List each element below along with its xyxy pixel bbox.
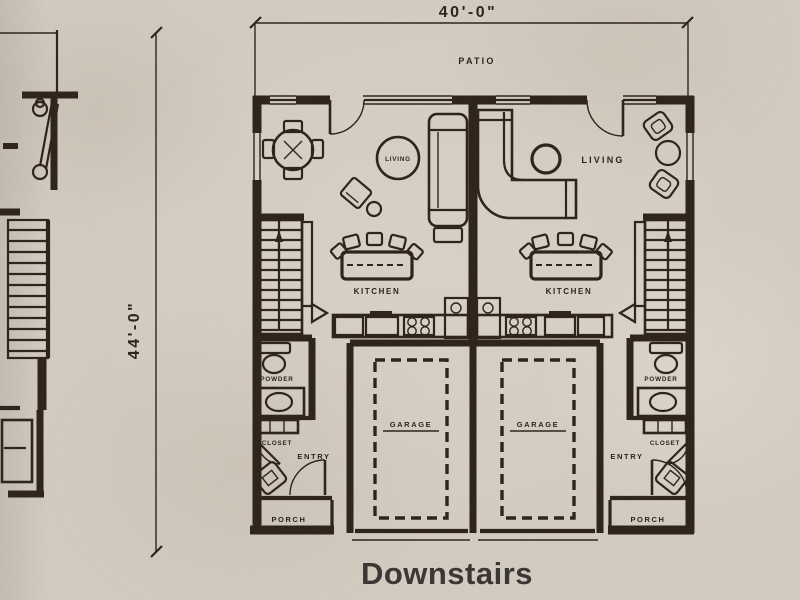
paper-texture-overlay — [0, 0, 800, 600]
floor-plan-drawing: 40'-0" 44'-0" PATIO — [0, 0, 800, 600]
floor-title: Downstairs — [47, 556, 800, 592]
